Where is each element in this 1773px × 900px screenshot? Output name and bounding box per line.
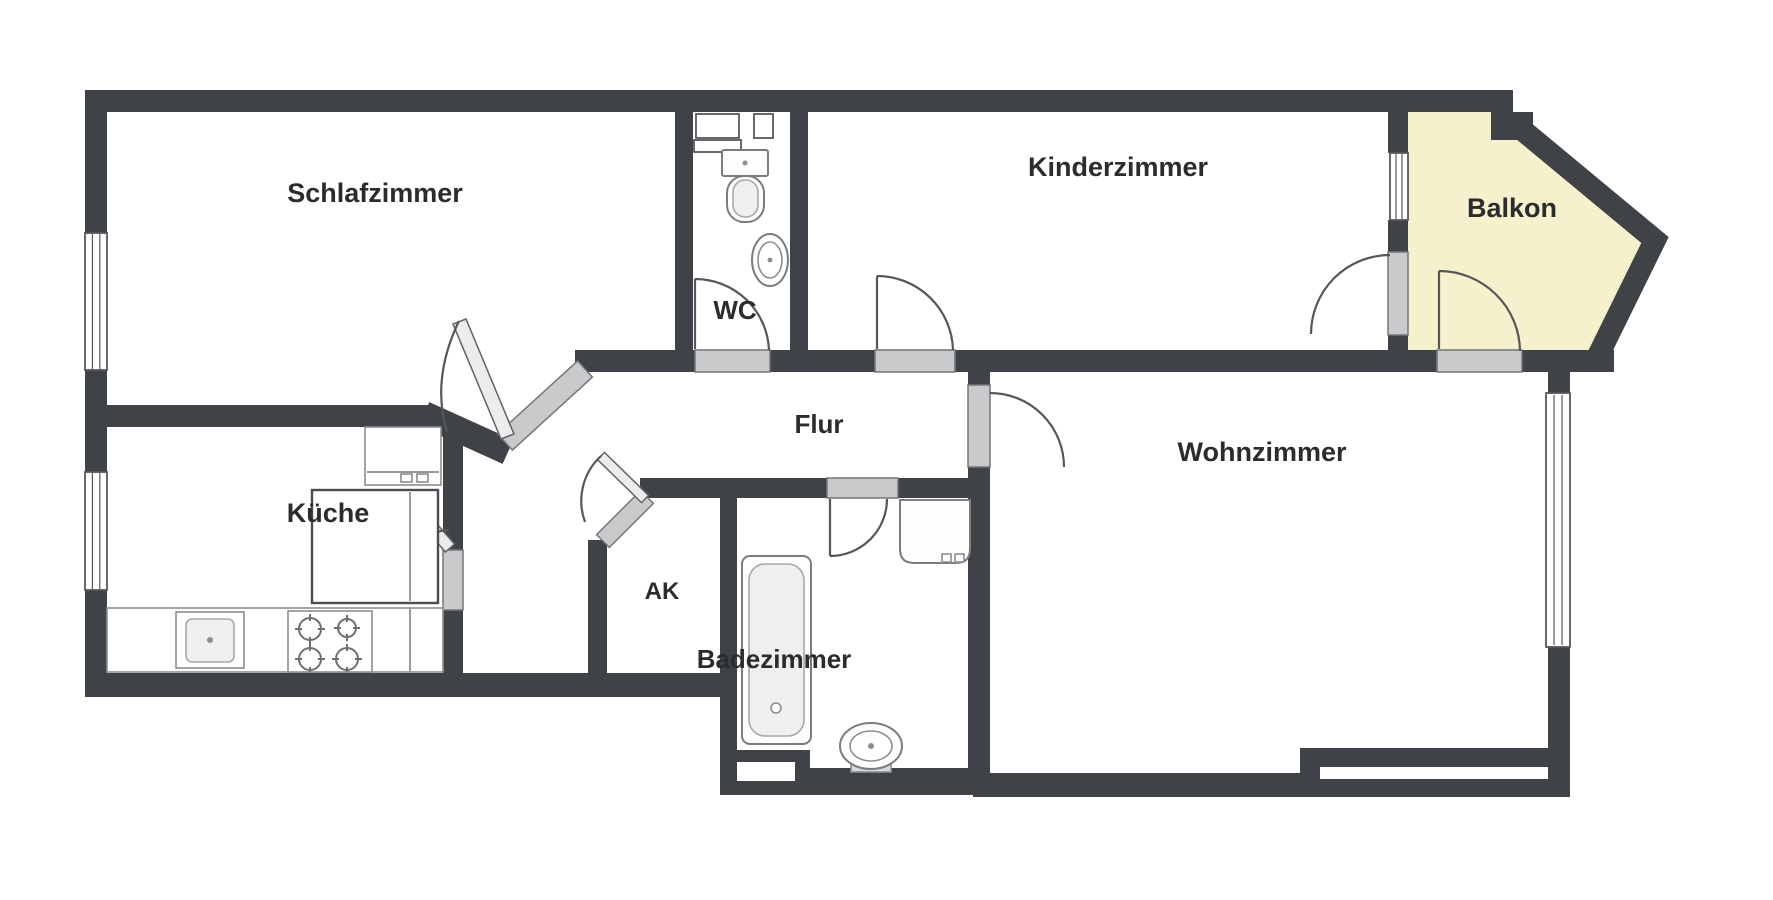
room-label-wohnzimmer: Wohnzimmer <box>1177 437 1347 467</box>
bath-washbasin-icon <box>900 500 970 563</box>
kitchen-counter <box>107 608 443 672</box>
room-labels: Schlafzimmer Kinderzimmer Balkon WC Flur… <box>287 152 1557 674</box>
bath-toilet-icon <box>840 723 902 772</box>
wc-door-threshold <box>695 350 770 372</box>
livingroom-wall-niche <box>1322 767 1528 779</box>
kitchen-window <box>85 472 107 590</box>
kinderzimmer-door-threshold <box>875 350 955 372</box>
kitchen-door-threshold <box>443 550 463 610</box>
bathroom-door <box>830 499 887 556</box>
wc-window <box>694 114 773 152</box>
balcony-door-threshold <box>1437 350 1522 372</box>
kinderzimmer-balcony-door-threshold <box>1388 252 1408 335</box>
room-label-ak: AK <box>645 578 680 605</box>
floor-plan-drawing: Schlafzimmer Kinderzimmer Balkon WC Flur… <box>0 0 1773 900</box>
bath-wall-niche <box>737 762 795 781</box>
livingroom-window <box>1546 393 1570 647</box>
room-label-flur: Flur <box>794 409 843 439</box>
wc-toilet-icon <box>722 150 768 222</box>
room-label-kueche: Küche <box>287 498 370 528</box>
kitchen-top-counter <box>365 427 441 485</box>
room-label-schlafzimmer: Schlafzimmer <box>287 178 463 208</box>
livingroom-door <box>990 393 1064 467</box>
kitchen-sink-icon <box>176 612 244 668</box>
room-label-kinderzimmer: Kinderzimmer <box>1028 152 1209 182</box>
room-label-badezimmer: Badezimmer <box>697 644 852 674</box>
wc-washbasin-icon <box>752 234 788 286</box>
bedroom-window <box>85 233 107 370</box>
room-label-wc: WC <box>713 295 757 325</box>
kinderzimmer-balcony-door <box>1311 255 1390 334</box>
room-label-balkon: Balkon <box>1467 193 1557 223</box>
stove-burners-icon <box>288 611 372 672</box>
bedroom-door-threshold <box>498 361 593 450</box>
kinderzimmer-door <box>877 276 953 350</box>
floor-plan-page: Schlafzimmer Kinderzimmer Balkon WC Flur… <box>0 0 1773 900</box>
bathroom-door-threshold <box>827 478 898 498</box>
kinderzimmer-balcony-window <box>1390 153 1408 220</box>
livingroom-door-threshold <box>968 385 990 467</box>
